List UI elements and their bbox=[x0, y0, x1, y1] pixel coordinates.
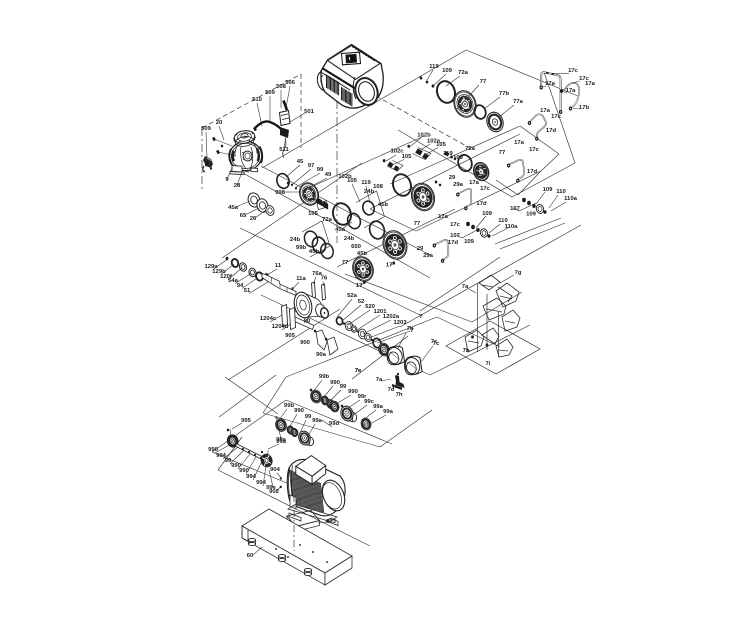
svg-text:17d: 17d bbox=[448, 240, 459, 246]
svg-text:995: 995 bbox=[241, 418, 252, 424]
svg-text:45a: 45a bbox=[228, 205, 239, 211]
svg-text:7a: 7a bbox=[376, 377, 383, 383]
svg-text:17a: 17a bbox=[514, 140, 525, 146]
svg-text:7i: 7i bbox=[486, 361, 491, 367]
svg-text:90a: 90a bbox=[316, 352, 327, 358]
svg-text:77: 77 bbox=[480, 79, 487, 85]
svg-text:49: 49 bbox=[325, 172, 332, 178]
svg-text:99: 99 bbox=[317, 167, 324, 173]
svg-text:60: 60 bbox=[247, 553, 254, 559]
svg-text:99: 99 bbox=[305, 414, 312, 420]
svg-text:17: 17 bbox=[356, 283, 363, 289]
svg-text:17b: 17b bbox=[579, 105, 590, 111]
svg-text:506: 506 bbox=[285, 80, 296, 86]
svg-text:17a: 17a bbox=[438, 214, 449, 220]
svg-text:26: 26 bbox=[250, 216, 257, 222]
svg-text:29: 29 bbox=[417, 246, 424, 252]
svg-text:994: 994 bbox=[246, 474, 257, 480]
svg-text:119: 119 bbox=[361, 180, 371, 186]
svg-text:905: 905 bbox=[285, 333, 296, 339]
svg-text:7e: 7e bbox=[355, 368, 362, 374]
svg-text:45b: 45b bbox=[309, 249, 320, 255]
svg-text:7g: 7g bbox=[515, 270, 522, 276]
svg-text:511: 511 bbox=[279, 147, 289, 153]
svg-text:99: 99 bbox=[340, 384, 347, 390]
svg-text:7d: 7d bbox=[388, 387, 395, 393]
svg-text:990: 990 bbox=[294, 408, 305, 414]
svg-text:105: 105 bbox=[308, 211, 319, 217]
svg-text:7h: 7h bbox=[396, 392, 403, 398]
svg-text:72a: 72a bbox=[465, 146, 476, 152]
svg-text:110a: 110a bbox=[564, 196, 578, 202]
svg-text:102b: 102b bbox=[338, 174, 352, 180]
svg-text:65: 65 bbox=[240, 213, 247, 219]
svg-text:110a: 110a bbox=[505, 224, 519, 230]
svg-text:11: 11 bbox=[275, 263, 282, 269]
svg-text:109: 109 bbox=[526, 212, 537, 218]
svg-text:99b: 99b bbox=[284, 403, 295, 409]
svg-text:17c: 17c bbox=[551, 114, 562, 120]
svg-text:7a: 7a bbox=[462, 284, 469, 290]
svg-text:77b: 77b bbox=[499, 91, 510, 97]
svg-text:17d: 17d bbox=[527, 169, 538, 175]
svg-text:650: 650 bbox=[351, 244, 362, 250]
svg-text:17a: 17a bbox=[469, 180, 480, 186]
svg-text:107: 107 bbox=[450, 233, 461, 239]
svg-text:45: 45 bbox=[297, 159, 304, 165]
svg-text:509: 509 bbox=[201, 126, 212, 132]
svg-text:97: 97 bbox=[308, 163, 315, 169]
svg-text:99b: 99b bbox=[296, 245, 307, 251]
svg-text:509: 509 bbox=[265, 90, 276, 96]
svg-text:7b: 7b bbox=[463, 348, 470, 354]
svg-text:17a: 17a bbox=[545, 81, 556, 87]
svg-text:24b: 24b bbox=[364, 189, 375, 195]
svg-text:119: 119 bbox=[443, 151, 453, 157]
svg-text:109: 109 bbox=[464, 239, 475, 245]
svg-text:17: 17 bbox=[386, 263, 393, 269]
svg-text:24b: 24b bbox=[290, 237, 301, 243]
svg-text:109: 109 bbox=[442, 68, 453, 74]
svg-text:77: 77 bbox=[414, 221, 421, 227]
svg-text:105: 105 bbox=[436, 142, 447, 148]
svg-text:803: 803 bbox=[326, 519, 337, 525]
svg-text:900: 900 bbox=[300, 340, 311, 346]
svg-text:29a: 29a bbox=[423, 253, 434, 259]
svg-text:902: 902 bbox=[269, 489, 280, 495]
svg-text:99a: 99a bbox=[373, 404, 384, 410]
svg-text:109: 109 bbox=[453, 155, 464, 161]
svg-text:17a: 17a bbox=[585, 81, 596, 87]
svg-text:99a: 99a bbox=[383, 409, 394, 415]
svg-text:45b: 45b bbox=[357, 251, 368, 257]
svg-text:119: 119 bbox=[429, 64, 439, 70]
svg-text:994: 994 bbox=[256, 480, 267, 486]
svg-text:904: 904 bbox=[270, 467, 281, 473]
svg-text:501: 501 bbox=[304, 109, 315, 115]
svg-text:17d: 17d bbox=[476, 201, 487, 207]
svg-text:29a: 29a bbox=[453, 182, 464, 188]
svg-text:108: 108 bbox=[373, 184, 384, 190]
svg-text:17c: 17c bbox=[480, 186, 491, 192]
svg-text:1203: 1203 bbox=[393, 320, 407, 326]
svg-text:77: 77 bbox=[499, 150, 506, 156]
svg-text:107: 107 bbox=[510, 206, 521, 212]
svg-text:20: 20 bbox=[216, 120, 223, 126]
svg-text:510: 510 bbox=[252, 97, 263, 103]
svg-text:99a: 99a bbox=[276, 439, 287, 445]
svg-text:7c: 7c bbox=[433, 341, 440, 347]
svg-text:99b: 99b bbox=[319, 374, 330, 380]
svg-text:17a: 17a bbox=[540, 108, 551, 114]
svg-text:24b: 24b bbox=[344, 236, 355, 242]
svg-text:109: 109 bbox=[543, 187, 554, 193]
svg-text:17c: 17c bbox=[529, 147, 540, 153]
svg-text:45b: 45b bbox=[378, 202, 389, 208]
svg-text:77: 77 bbox=[342, 260, 349, 266]
svg-text:105: 105 bbox=[402, 154, 413, 160]
svg-text:1204c: 1204c bbox=[260, 316, 277, 322]
svg-text:17c: 17c bbox=[568, 68, 579, 74]
svg-text:17a: 17a bbox=[566, 88, 577, 94]
svg-text:17c: 17c bbox=[450, 222, 461, 228]
svg-text:29: 29 bbox=[449, 175, 456, 181]
svg-text:77a: 77a bbox=[513, 99, 524, 105]
svg-text:72a: 72a bbox=[458, 70, 469, 76]
svg-text:99a: 99a bbox=[312, 418, 323, 424]
svg-text:17d: 17d bbox=[546, 128, 557, 134]
svg-text:52a: 52a bbox=[347, 293, 358, 299]
svg-text:109: 109 bbox=[482, 211, 493, 217]
svg-text:110: 110 bbox=[556, 189, 566, 195]
svg-text:72a: 72a bbox=[322, 217, 333, 223]
svg-text:76: 76 bbox=[321, 276, 328, 282]
svg-text:11a: 11a bbox=[296, 276, 306, 282]
svg-text:52: 52 bbox=[358, 299, 365, 305]
svg-text:998: 998 bbox=[275, 190, 286, 196]
